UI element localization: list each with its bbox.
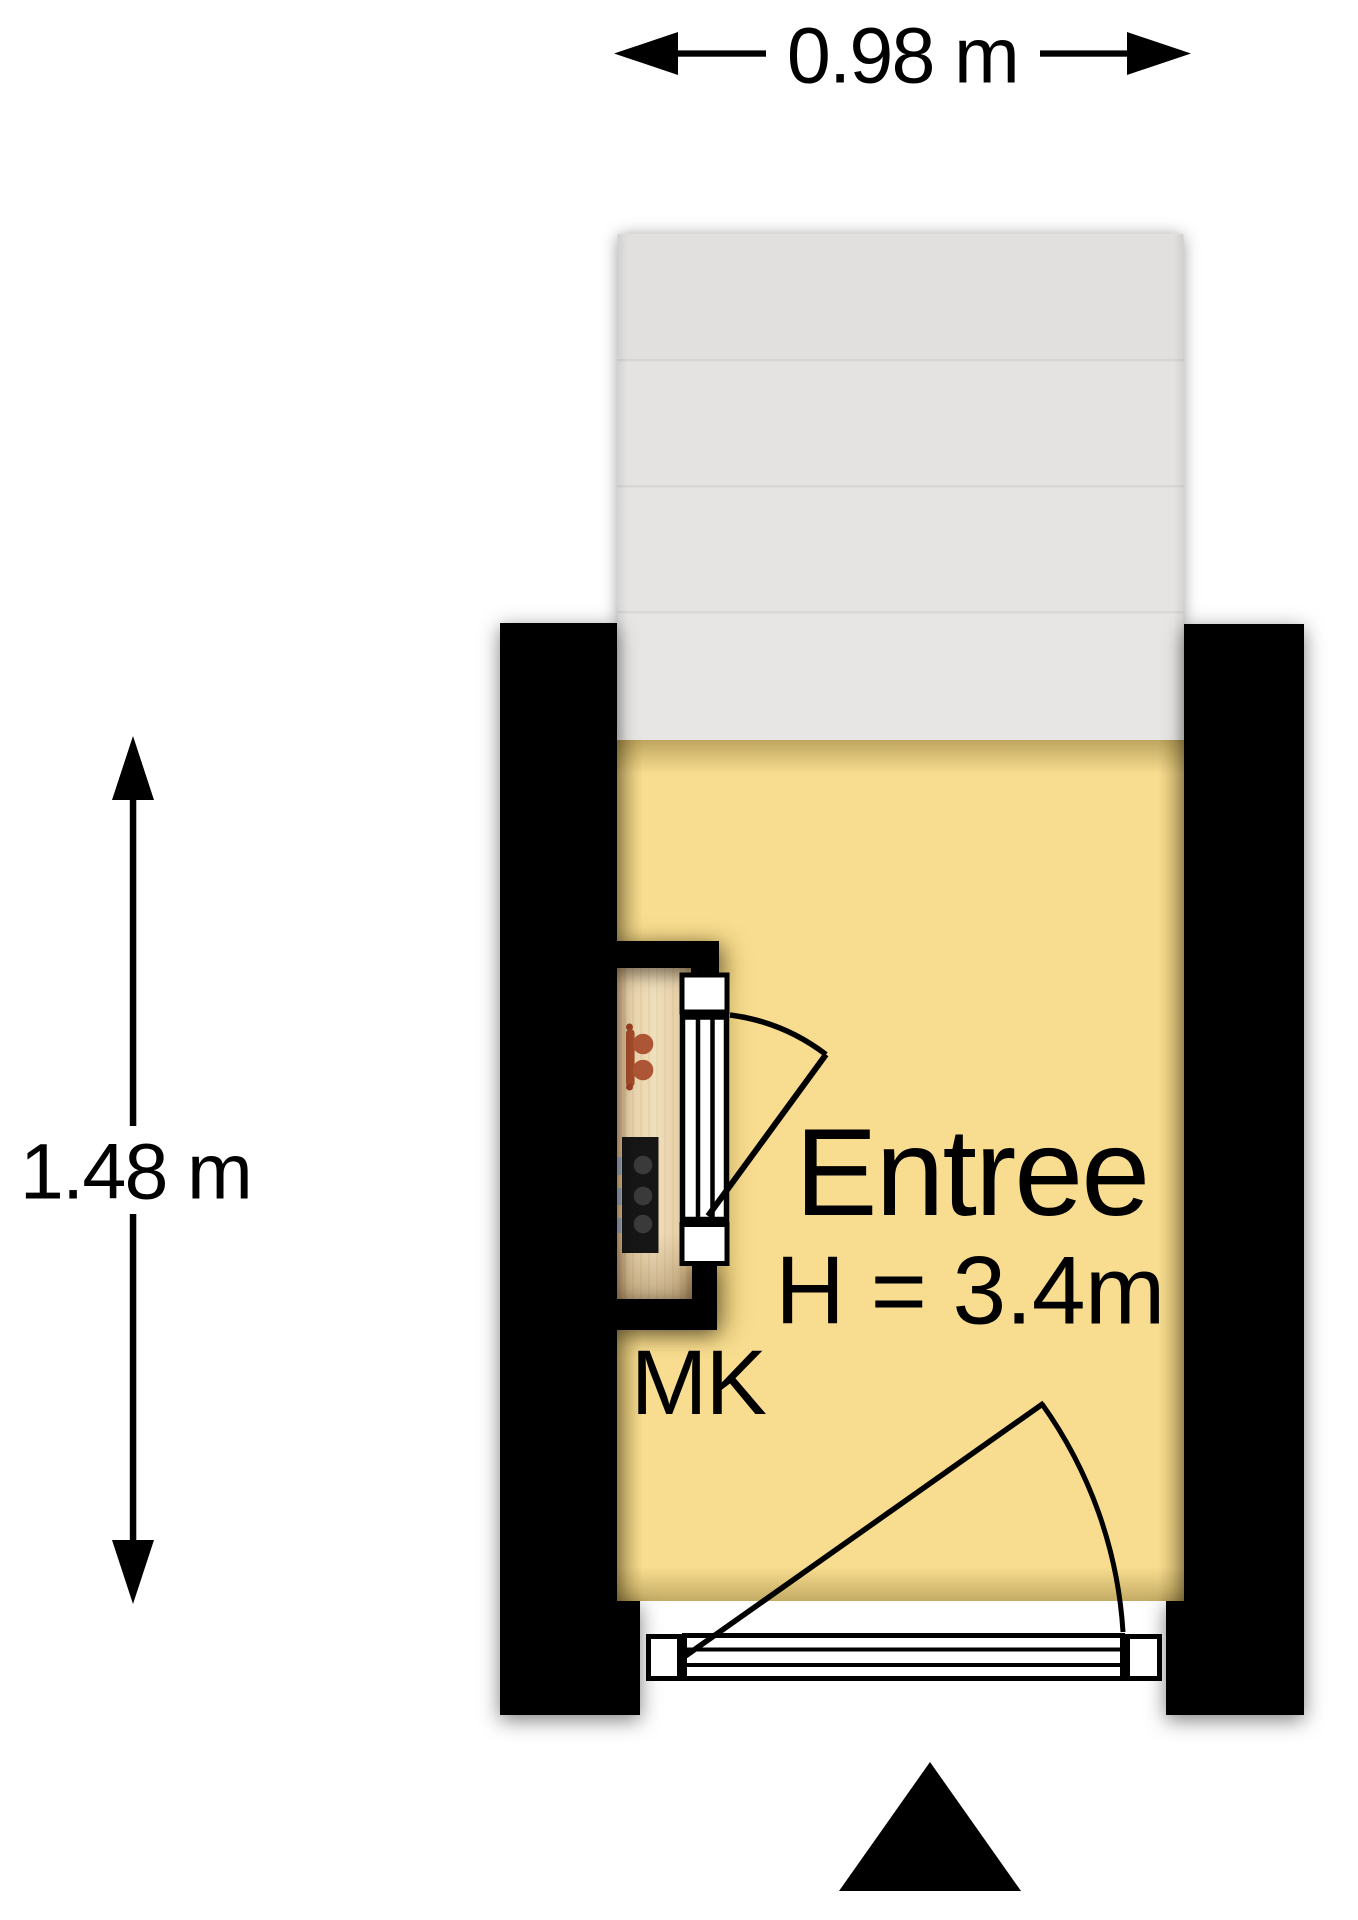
svg-text:MK: MK	[631, 1332, 767, 1434]
svg-text:0.98 m: 0.98 m	[787, 11, 1018, 100]
svg-text:H = 3.4m: H = 3.4m	[775, 1238, 1164, 1345]
svg-text:1.48 m: 1.48 m	[20, 1127, 251, 1216]
svg-text:Entree: Entree	[795, 1104, 1148, 1242]
